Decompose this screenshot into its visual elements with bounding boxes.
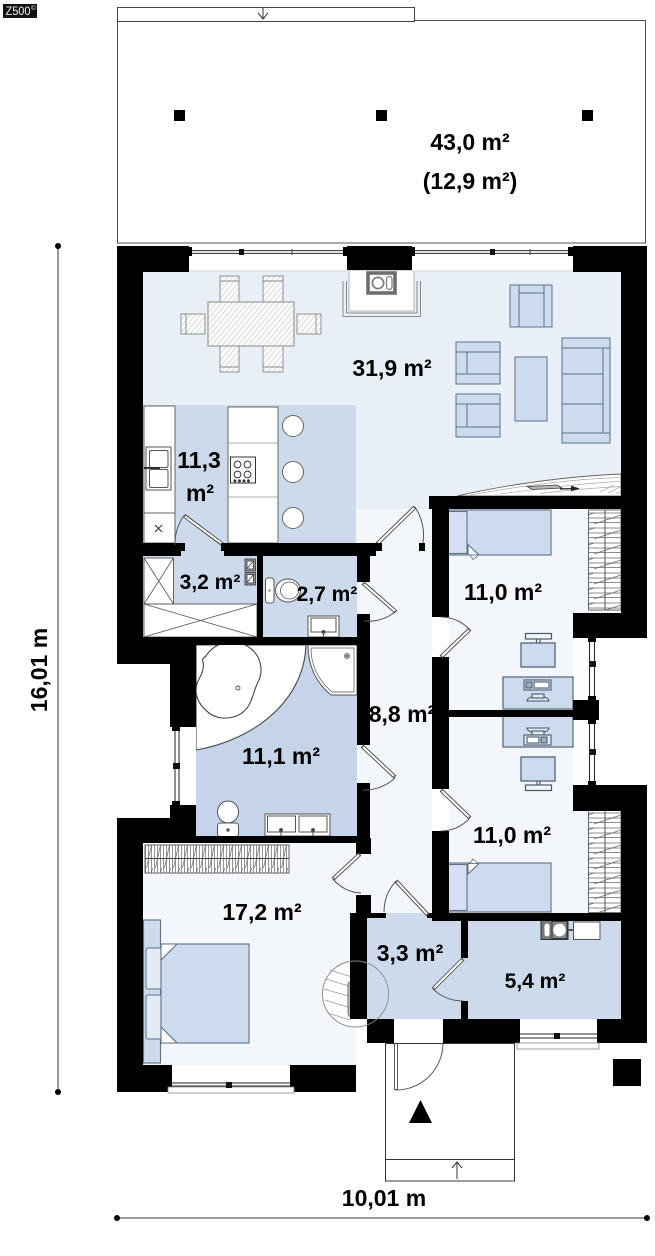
svg-text:11,3: 11,3 — [177, 447, 221, 473]
svg-text:(12,9 m²): (12,9 m²) — [423, 168, 518, 194]
svg-text:43,0 m²: 43,0 m² — [430, 129, 510, 155]
svg-text:3,3 m²: 3,3 m² — [377, 940, 444, 966]
svg-text:2,7 m²: 2,7 m² — [297, 583, 358, 606]
svg-text:©: © — [31, 4, 36, 12]
svg-text:10,01 m: 10,01 m — [342, 1185, 426, 1211]
svg-text:5,4 m²: 5,4 m² — [505, 970, 566, 993]
svg-text:11,0 m²: 11,0 m² — [464, 579, 542, 605]
svg-text:Z500: Z500 — [6, 6, 31, 18]
svg-text:31,9 m²: 31,9 m² — [352, 355, 432, 381]
svg-text:m²: m² — [186, 480, 214, 506]
svg-text:17,2 m²: 17,2 m² — [222, 899, 302, 925]
svg-text:8,8 m²: 8,8 m² — [369, 701, 436, 727]
svg-text:3,2 m²: 3,2 m² — [180, 571, 241, 594]
svg-text:16,01 m: 16,01 m — [26, 628, 52, 712]
svg-text:11,1 m²: 11,1 m² — [242, 743, 320, 769]
svg-text:11,0 m²: 11,0 m² — [473, 822, 551, 848]
